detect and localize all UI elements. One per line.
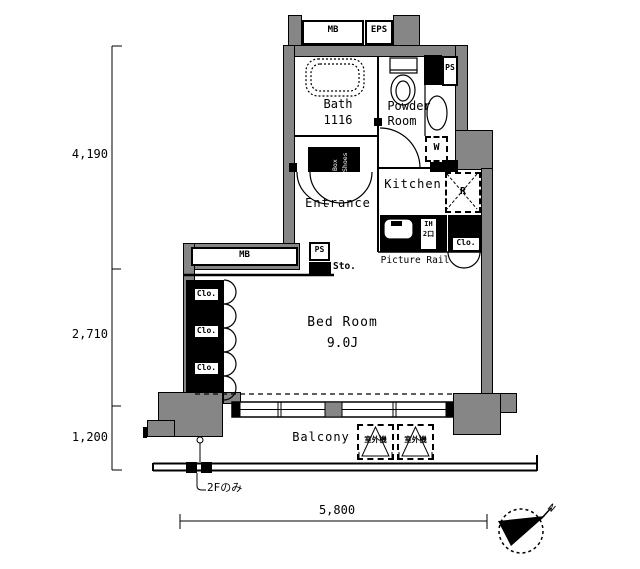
sliding-window (232, 402, 453, 417)
refrigerator-label: R (445, 186, 481, 197)
closet-bedroom-label: Clo. (194, 327, 219, 336)
washing-machine-label: W (425, 142, 448, 153)
closet-bedroom-label: Clo. (194, 364, 219, 373)
entrance-label: Entrance (298, 197, 378, 210)
pipe-space-hall-label: PS (309, 246, 330, 255)
kitchen-label: Kitchen (378, 178, 448, 191)
north-compass (498, 508, 551, 553)
eps-label: EPS (365, 26, 393, 36)
plan-linework (0, 0, 640, 569)
picture-rail-label: Picture Rail (380, 256, 450, 266)
closet-kitchen-label: Clo. (452, 239, 480, 248)
dim-left-1: 4,190 (58, 148, 108, 161)
bedroom-label: Bed Room (280, 316, 405, 330)
dim-bottom: 5,800 (307, 504, 367, 517)
toilet (390, 58, 417, 105)
balcony-rail (153, 455, 537, 471)
meter-box-label: MB (302, 26, 364, 36)
stove-label2: 2口 (419, 231, 438, 239)
bath-label: Bath (314, 98, 362, 111)
powder-room-label2: Room (378, 115, 426, 128)
balcony-label: Balcony (288, 431, 354, 444)
floor-plan: MB EPS PS Bath 1116 Powder Room Kitchen … (0, 0, 640, 569)
bath-size-label: 1116 (314, 114, 362, 127)
pipe-space-upper-label: PS (441, 64, 459, 73)
kitchen-sink (384, 219, 413, 239)
bathtub (306, 59, 364, 96)
closet-bedroom-label: Clo. (194, 290, 219, 299)
dim-left-2: 2,710 (58, 328, 108, 341)
storage-label: Sto. (333, 262, 356, 272)
dim-left-3: 1,200 (58, 431, 108, 444)
meter-box-window-label: MB (191, 251, 298, 261)
shoes-box-label1: Shoes (342, 148, 349, 172)
shoes-box-label2: Box (332, 151, 339, 171)
floor-note-label: 2Fのみ (207, 482, 242, 494)
bedroom-size-label: 9.0J (280, 337, 405, 351)
stove-label1: IH (419, 221, 438, 229)
outdoor-unit-label: 室外機 (357, 436, 394, 444)
powder-room-label: Powder (381, 100, 437, 113)
outdoor-unit-label: 室外機 (397, 436, 434, 444)
